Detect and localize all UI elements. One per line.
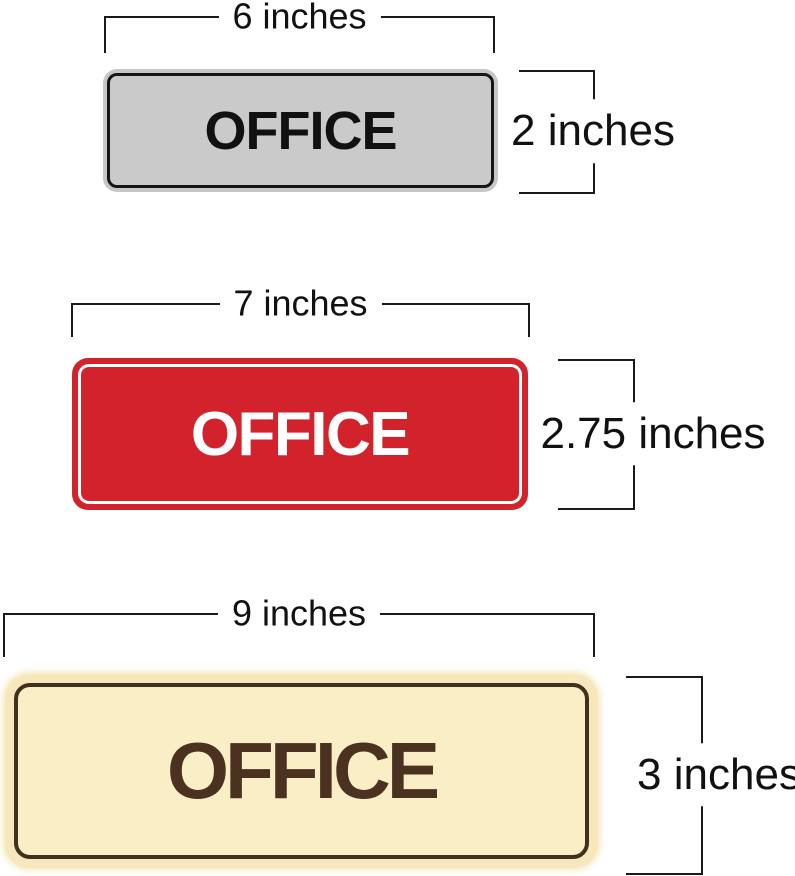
- silver-sign-face: OFFICE: [107, 73, 494, 188]
- red-office-sign: OFFICE: [72, 358, 528, 510]
- width-dimension-label: 6 inches: [218, 0, 380, 36]
- dimension-end-tick: [626, 873, 703, 875]
- sign-text: OFFICE: [191, 399, 409, 470]
- sign-text: OFFICE: [205, 100, 397, 162]
- dimension-end-tick: [519, 70, 595, 72]
- height-dimension-label: 2 inches: [505, 99, 681, 163]
- height-dimension-label: 2.75 inches: [534, 402, 771, 466]
- height-dimension-label: 3 inches: [631, 743, 795, 807]
- height-dimension-2in: 2 inches: [519, 70, 593, 192]
- dimension-end-tick: [558, 359, 635, 361]
- dimension-end-tick: [104, 16, 106, 53]
- cream-office-sign: OFFICE: [5, 674, 598, 868]
- dimension-end-tick: [558, 508, 635, 510]
- office-signs-size-diagram: 6 inches OFFICE 2 inches 7 inches OFFICE…: [0, 0, 795, 876]
- dimension-end-tick: [493, 16, 495, 53]
- width-dimension-label: 7 inches: [219, 285, 381, 324]
- dimension-end-tick: [519, 192, 595, 194]
- dimension-end-tick: [528, 303, 530, 337]
- cream-sign-face: OFFICE: [14, 683, 589, 859]
- height-dimension-2-75in: 2.75 inches: [558, 359, 633, 508]
- silver-office-sign: OFFICE: [103, 69, 498, 192]
- dimension-end-tick: [626, 676, 703, 678]
- height-dimension-3in: 3 inches: [626, 676, 701, 873]
- dimension-end-tick: [593, 613, 595, 657]
- dimension-end-tick: [71, 303, 73, 337]
- sign-text: OFFICE: [167, 725, 436, 817]
- width-dimension-label: 9 inches: [218, 595, 380, 634]
- dimension-end-tick: [3, 613, 5, 657]
